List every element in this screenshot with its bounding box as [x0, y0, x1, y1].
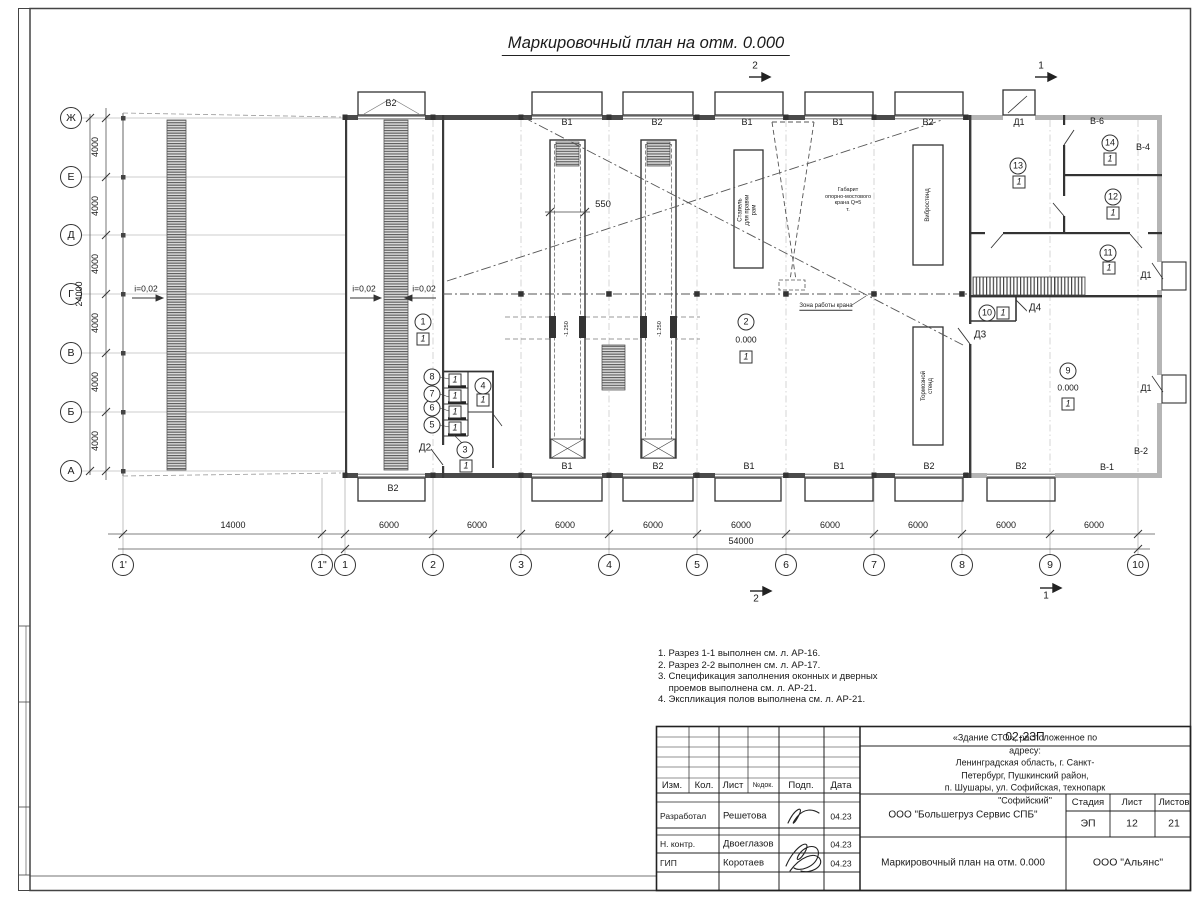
titleblock-object: «Здание СТО», расположенное по адресу: Л… [938, 732, 1113, 807]
gate-bot-v2-1: В2 [387, 484, 398, 494]
tb-hdr-podp: Подп. [788, 781, 813, 791]
level-zero-hall: 0.000 [733, 335, 758, 344]
dim-6000-2: 6000 [467, 521, 487, 531]
tb-sheets-value: 21 [1168, 818, 1180, 829]
dim-4000-2: 4000 [90, 196, 100, 216]
gate-top-v2-1: В2 [385, 99, 396, 109]
axis-col-7: 7 [863, 554, 885, 576]
dim-6000-5: 6000 [731, 521, 751, 531]
room-marker-14: 14 [1102, 135, 1119, 152]
slope-label-2: i=0,02 [352, 284, 375, 293]
axis-row-v: В [60, 342, 82, 364]
section-mark-1-top: 1 [1038, 62, 1044, 73]
gate-bot-v2-2: В2 [652, 462, 663, 472]
floor-mark-10: 1 [997, 307, 1010, 320]
axis-row-zh: Ж [60, 107, 82, 129]
floor-mark-5: 1 [449, 422, 462, 435]
signatures [786, 809, 821, 872]
slope-label-3: i=0,02 [412, 284, 435, 293]
gate-top-v1-3: В1 [832, 118, 843, 128]
room-marker-1: 1 [415, 314, 432, 331]
vent-v2: В-2 [1134, 447, 1148, 457]
floor-mark-12: 1 [1107, 207, 1120, 220]
door-d3: Д3 [972, 331, 988, 342]
tb-date-3: 04.23 [830, 859, 851, 868]
gate-top-v1-1: В1 [561, 118, 572, 128]
floor-mark-14: 1 [1104, 153, 1117, 166]
tb-sheet-value: 12 [1126, 818, 1138, 829]
dim-6000-7: 6000 [908, 521, 928, 531]
vent-v6: В-6 [1090, 117, 1104, 127]
dim-6000-4: 6000 [643, 521, 663, 531]
gate-top-v2-3: В2 [922, 118, 933, 128]
note-item: 4. Экспликация полов выполнена см. л. АР… [658, 694, 878, 706]
floor-mark-3: 1 [460, 460, 473, 473]
section-mark-1-bottom: 1 [1043, 592, 1049, 603]
dim-6000-3: 6000 [555, 521, 575, 531]
note-item: 3. Спецификация заполнения оконных и две… [658, 671, 878, 694]
equipment-vibro-label: Вибростенд [925, 188, 931, 221]
axis-row-a: А [60, 460, 82, 482]
floor-mark-4: 1 [477, 394, 490, 407]
door-d1-right-1: Д1 [1138, 271, 1153, 281]
room-marker-10: 10 [979, 305, 996, 322]
tb-hdr-list: Лист [723, 781, 744, 791]
gate-bot-v1-1: В1 [561, 462, 572, 472]
room-marker-13: 13 [1010, 158, 1027, 175]
left-shed [121, 113, 341, 476]
floor-mark-11: 1 [1103, 262, 1116, 275]
axis-col-8: 8 [951, 554, 973, 576]
dim-550: 550 [595, 200, 611, 210]
note-item: 1. Разрез 1-1 выполнен см. л. АР-16. [658, 648, 878, 660]
dim-14000: 14000 [220, 521, 245, 531]
tb-name-1: Решетова [723, 811, 767, 822]
axis-row-e: Е [60, 166, 82, 188]
floor-mark-13: 1 [1013, 176, 1026, 189]
door-d1-top: Д1 [1013, 118, 1024, 128]
room-marker-4: 4 [475, 378, 492, 395]
note-item: 2. Разрез 2-2 выполнен см. л. АР-17. [658, 660, 878, 672]
dim-4000-6: 4000 [90, 431, 100, 451]
axis-col-6: 6 [775, 554, 797, 576]
room-marker-9: 9 [1060, 363, 1077, 380]
gate-bot-v1-3: В1 [833, 462, 844, 472]
vent-v4: В-4 [1136, 143, 1150, 153]
tb-name-3: Коротаев [723, 858, 764, 869]
inspection-pits [505, 140, 700, 458]
floor-mark-8: 1 [449, 374, 462, 387]
tb-date-1: 04.23 [830, 812, 851, 821]
floor-mark-7: 1 [449, 390, 462, 403]
section-mark-2-top: 2 [752, 62, 758, 73]
tb-drawing-name: Маркировочный план на отм. 0.000 [881, 859, 1045, 870]
axis-col-1pp: 1" [311, 554, 333, 576]
tb-role-3: ГИП [660, 858, 677, 868]
pit-level-2: -1.250 [657, 319, 663, 339]
crane-zone-label: Зона работы крана [799, 303, 852, 311]
slope-label-1: i=0,02 [134, 284, 157, 293]
pit-level-1: -1.250 [564, 319, 570, 339]
vent-v1: В-1 [1100, 463, 1114, 473]
gate-top-v2-2: В2 [651, 118, 662, 128]
floor-mark-1: 1 [417, 333, 430, 346]
drawing-title: Маркировочный план на отм. 0.000 [502, 34, 790, 56]
tb-sheet-label: Лист [1122, 798, 1143, 808]
axis-row-d: Д [60, 224, 82, 246]
tb-sheets-label: Листов [1159, 798, 1190, 808]
drawing-sheet: Маркировочный план на отм. 0.000 2 1 2 1… [0, 0, 1200, 900]
gate-bot-v2-3: В2 [923, 462, 934, 472]
tb-firm: ООО "Альянс" [1093, 857, 1163, 868]
dim-4000-3: 4000 [90, 254, 100, 274]
gate-bot-v2-4: В2 [1015, 462, 1026, 472]
tb-role-1: Разработал [660, 811, 706, 821]
axis-row-b: Б [60, 401, 82, 423]
axis-col-2: 2 [422, 554, 444, 576]
tb-company: ООО "Большегруз Сервис СПБ" [888, 811, 1037, 822]
tb-name-2: Двоеглазов [723, 839, 774, 850]
floor-mark-2: 1 [740, 351, 753, 364]
level-zero-right: 0.000 [1055, 383, 1080, 392]
room-marker-11: 11 [1100, 245, 1117, 262]
floor-mark-9: 1 [1062, 398, 1075, 411]
room-marker-5: 5 [424, 417, 441, 434]
tb-stage-value: ЭП [1080, 818, 1095, 829]
room-marker-7: 7 [424, 386, 441, 403]
dim-6000-9: 6000 [1084, 521, 1104, 531]
dim-24000: 24000 [74, 281, 84, 306]
gate-top-v1-2: В1 [741, 118, 752, 128]
equipment-stapel-label: Стапель для правки рам [738, 194, 759, 225]
dim-6000-1: 6000 [379, 521, 399, 531]
floor-mark-6: 1 [449, 406, 462, 419]
door-d4: Д4 [1027, 304, 1043, 315]
room-marker-3: 3 [457, 442, 474, 459]
door-d1-right-2: Д1 [1138, 384, 1153, 394]
gate-lines [358, 116, 1055, 477]
section-mark-2-bottom: 2 [753, 595, 759, 606]
tb-stage-label: Стадия [1072, 798, 1104, 808]
crane-gabarit-label: Габарит опорно-мостового крана Q=5 т. [825, 187, 871, 213]
tb-hdr-kol: Кол. [695, 781, 714, 791]
axis-col-5: 5 [686, 554, 708, 576]
gate-bot-v1-2: В1 [743, 462, 754, 472]
ramp-hatch [384, 120, 408, 470]
equipment-tormoz-label: Тормозной стенд [921, 371, 935, 401]
notes-list: 1. Разрез 1-1 выполнен см. л. АР-16. 2. … [658, 648, 878, 706]
section-arrows [749, 73, 1061, 595]
dim-4000-1: 4000 [90, 137, 100, 157]
tb-hdr-data: Дата [830, 781, 851, 791]
tb-date-2: 04.23 [830, 840, 851, 849]
right-wing-partitions [969, 115, 1162, 321]
dim-54000: 54000 [728, 537, 753, 547]
tb-role-2: Н. контр. [660, 839, 695, 849]
axis-col-10: 10 [1127, 554, 1149, 576]
axis-col-9: 9 [1039, 554, 1061, 576]
dim-4000-5: 4000 [90, 372, 100, 392]
dim-6000-8: 6000 [996, 521, 1016, 531]
axis-col-1p: 1' [112, 554, 134, 576]
dim-6000-6: 6000 [820, 521, 840, 531]
tb-hdr-izm: Изм. [662, 781, 682, 791]
door-d2: Д2 [419, 444, 431, 455]
axis-col-1: 1 [334, 554, 356, 576]
room-marker-2: 2 [738, 314, 755, 331]
dim-4000-4: 4000 [90, 313, 100, 333]
room-marker-12: 12 [1105, 189, 1122, 206]
axis-col-4: 4 [598, 554, 620, 576]
crane-graphics [443, 117, 970, 345]
tb-hdr-ndok: №док. [753, 782, 774, 790]
room-marker-8: 8 [424, 369, 441, 386]
axis-col-3: 3 [510, 554, 532, 576]
